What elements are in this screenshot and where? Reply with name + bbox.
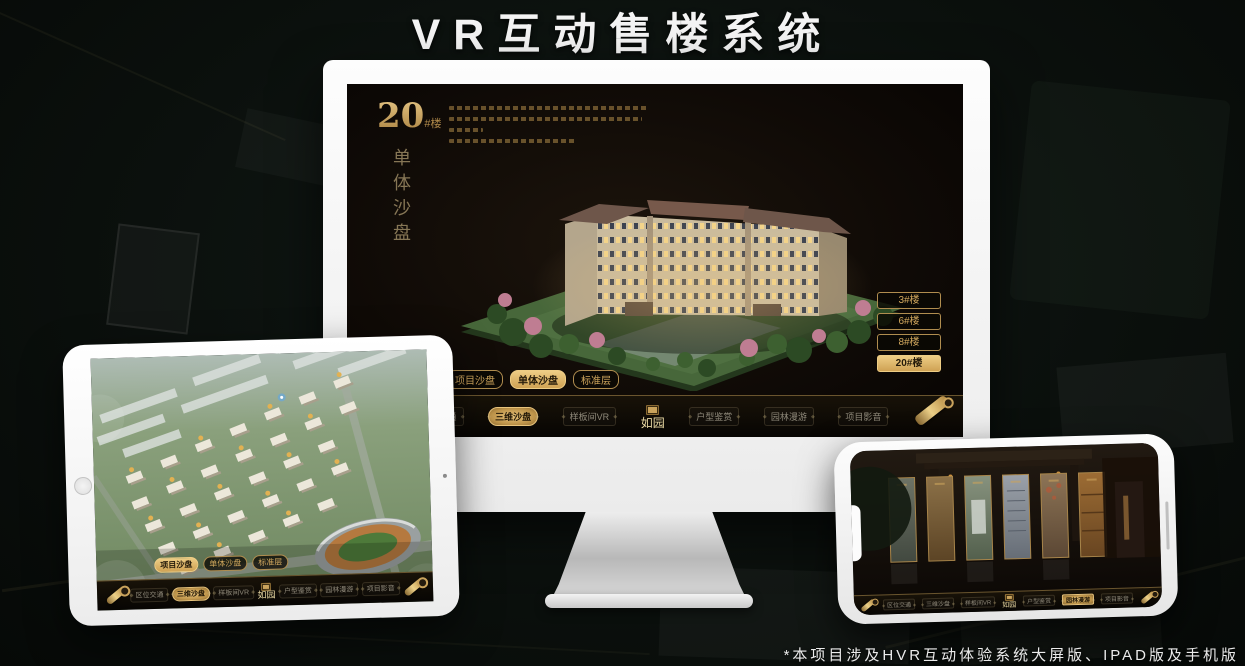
- block-number-suffix: #楼: [424, 118, 441, 130]
- nav-item-showroom-vr[interactable]: 样板间VR: [213, 585, 254, 600]
- phone-screen: 区位交通 三维沙盘 样板间VR 如园 户型鉴赏 园林漫游 项目影音: [850, 443, 1162, 616]
- courtyard-panorama-render: [850, 443, 1162, 596]
- nav-item-3d-sandbox[interactable]: 三维沙盘: [488, 407, 538, 426]
- brand-logo-text: 如园: [1002, 602, 1016, 609]
- floor-button-group: 3#楼 6#楼 8#楼 20#楼: [877, 292, 941, 372]
- tab-single-sandbox[interactable]: 单体沙盘: [510, 370, 566, 389]
- brand-logo: 如园: [641, 405, 665, 429]
- tab-standard-floor[interactable]: 标准层: [573, 370, 619, 389]
- block-number: 20: [377, 96, 424, 136]
- intro-text-lines: [449, 106, 659, 150]
- scroll-icon[interactable]: [914, 394, 951, 426]
- seal-icon: [646, 405, 659, 415]
- scroll-icon[interactable]: [1140, 591, 1156, 605]
- scroll-icon[interactable]: [105, 586, 126, 605]
- nav-item-garden-roam[interactable]: 园林漫游: [764, 407, 814, 426]
- nav-item-unit-appreciation[interactable]: 户型鉴赏: [1023, 595, 1055, 607]
- background-map-road: [150, 627, 649, 655]
- tablet-screen: 项目沙盘 单体沙盘 标准层 区位交通 三维沙盘 样板间VR 如园 户型鉴赏 园林…: [91, 349, 434, 610]
- background-photo-block: [1009, 80, 1231, 320]
- phone-device: 区位交通 三维沙盘 样板间VR 如园 户型鉴赏 园林漫游 项目影音: [834, 433, 1179, 624]
- tab-project-sandbox[interactable]: 项目沙盘: [154, 557, 198, 573]
- phone-notch: [851, 505, 862, 561]
- nav-item-garden-roam[interactable]: 园林漫游: [1062, 594, 1094, 606]
- scroll-icon[interactable]: [403, 578, 424, 597]
- tab-project-sandbox[interactable]: 项目沙盘: [447, 370, 503, 389]
- nav-item-location-traffic[interactable]: 区位交通: [130, 587, 168, 602]
- tab-single-sandbox[interactable]: 单体沙盘: [203, 555, 247, 571]
- nav-item-unit-appreciation[interactable]: 户型鉴赏: [689, 407, 739, 426]
- nav-item-project-media[interactable]: 项目影音: [838, 407, 888, 426]
- nav-item-showroom-vr[interactable]: 样板间VR: [961, 596, 996, 608]
- floor-button-3[interactable]: 3#楼: [877, 292, 941, 309]
- block-headline: 20#楼: [377, 96, 441, 136]
- scroll-icon[interactable]: [860, 598, 876, 612]
- nav-item-3d-sandbox[interactable]: 三维沙盘: [922, 597, 954, 609]
- floor-button-8[interactable]: 8#楼: [877, 334, 941, 351]
- monitor-stand-neck: [553, 512, 745, 596]
- tablet-home-button[interactable]: [74, 477, 92, 495]
- nav-item-3d-sandbox[interactable]: 三维沙盘: [172, 586, 210, 601]
- brand-logo-text: 如园: [257, 591, 275, 600]
- brand-logo-text: 如园: [641, 417, 665, 429]
- background-certificate-frame: [106, 223, 200, 334]
- monitor-stand-base: [545, 594, 753, 608]
- block-subtitle-vertical: 单体沙盘: [387, 148, 413, 248]
- nav-item-project-media[interactable]: 项目影音: [361, 581, 399, 596]
- aerial-masterplan-render: [91, 349, 434, 610]
- tablet-device: 项目沙盘 单体沙盘 标准层 区位交通 三维沙盘 样板间VR 如园 户型鉴赏 园林…: [62, 335, 460, 627]
- tab-standard-floor[interactable]: 标准层: [252, 554, 288, 570]
- poster-canvas: VR互动售楼系统: [0, 0, 1245, 666]
- seal-icon: [261, 582, 271, 590]
- tablet-camera-dot: [443, 474, 447, 478]
- floor-button-6[interactable]: 6#楼: [877, 313, 941, 330]
- view-tab-group: 项目沙盘 单体沙盘 标准层: [447, 370, 619, 389]
- nav-item-location-traffic[interactable]: 区位交通: [883, 599, 915, 611]
- brand-logo: 如园: [257, 582, 276, 600]
- nav-item-showroom-vr[interactable]: 样板间VR: [563, 407, 617, 426]
- nav-item-garden-roam[interactable]: 园林漫游: [320, 582, 358, 597]
- footnote-text: *本项目涉及HVR互动体验系统大屏版、IPAD版及手机版: [784, 644, 1239, 665]
- page-title: VR互动售楼系统: [0, 0, 1245, 62]
- brand-logo: 如园: [1002, 594, 1016, 609]
- building-render: [447, 136, 917, 391]
- nav-item-project-media[interactable]: 项目影音: [1101, 592, 1133, 604]
- floor-button-20[interactable]: 20#楼: [877, 355, 941, 372]
- nav-item-unit-appreciation[interactable]: 户型鉴赏: [279, 583, 317, 598]
- phone-speaker-line: [1165, 501, 1169, 549]
